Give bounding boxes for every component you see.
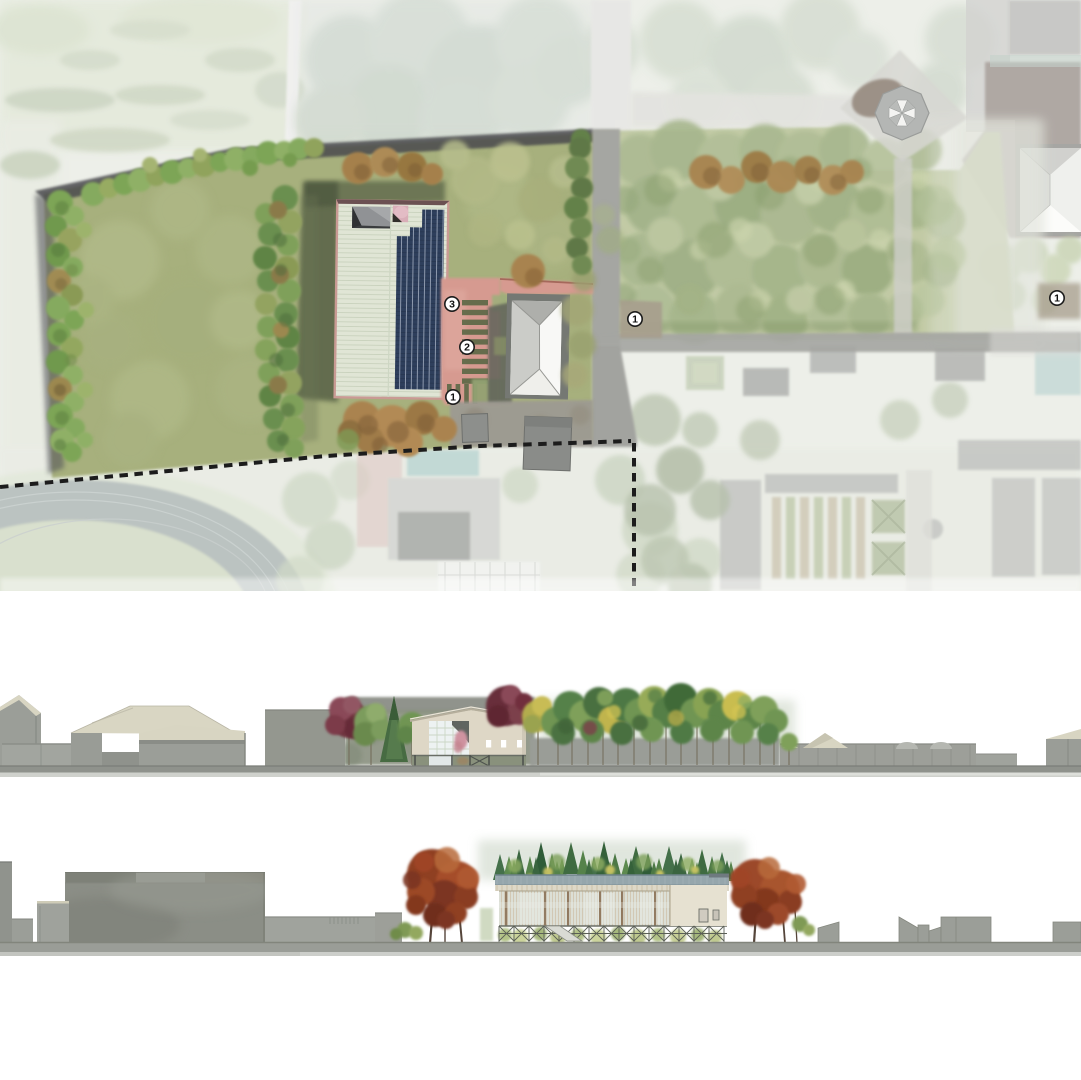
svg-text:1: 1 — [450, 391, 456, 403]
svg-text:3: 3 — [449, 298, 455, 310]
svg-text:1: 1 — [1054, 292, 1060, 304]
svg-text:2: 2 — [464, 341, 470, 353]
svg-text:1: 1 — [632, 313, 638, 325]
